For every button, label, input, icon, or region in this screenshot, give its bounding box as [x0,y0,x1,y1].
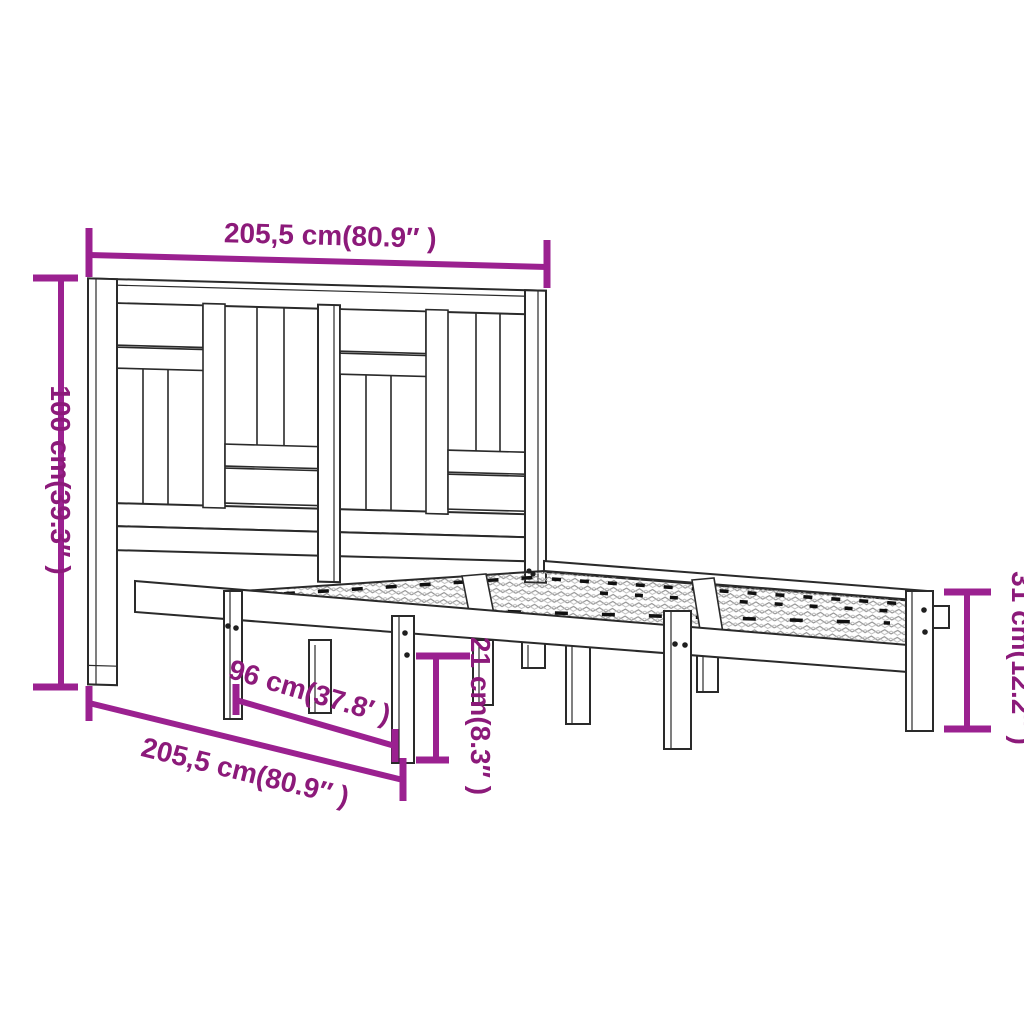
corner-post [906,591,933,731]
dimension-label-headboard-height: 100 cm(39.3″ ) [45,385,76,574]
front-leg [664,611,691,749]
dimension-label-top-width: 205,5 cm(80.9″ ) [224,217,437,254]
headboard-left-panel [117,301,318,510]
dimension-base-height: 21 cm(8.3″ ) [416,637,496,795]
bed-frame-dimension-diagram: 205,5 cm(80.9″ ) 100 cm(39.3″ ) 31 cm(12… [0,0,1024,1024]
rail-end-tab [933,606,949,628]
diagram-canvas: 205,5 cm(80.9″ ) 100 cm(39.3″ ) 31 cm(12… [0,0,1024,1024]
headboard-right-panel [340,307,525,516]
dimension-label-foot-height: 31 cm(12.2″ ) [1006,571,1024,745]
headboard-right-post [525,290,546,583]
headboard-left-post [88,278,117,685]
screw-dot [530,571,535,576]
dimension-top-width: 205,5 cm(80.9″ ) [89,217,547,288]
headboard-center-stile [318,305,340,583]
dimension-foot-height: 31 cm(12.2″ ) [944,571,1024,745]
dimension-headboard-height: 100 cm(39.3″ ) [33,278,78,687]
dimension-label-base-height: 21 cm(8.3″ ) [465,637,496,795]
